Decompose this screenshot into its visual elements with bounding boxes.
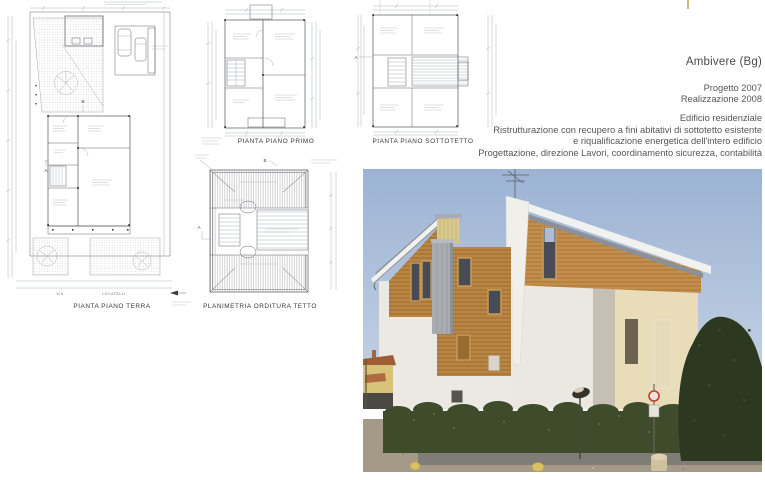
svg-text:A: A bbox=[197, 225, 201, 230]
description-line: e riqualificazione energetica dell'inter… bbox=[432, 136, 762, 148]
realization-year: Realizzazione 2008 bbox=[432, 94, 762, 105]
balcony bbox=[248, 118, 285, 127]
portfolio-page: B bbox=[0, 0, 765, 480]
plan-roof-framing-title: PLANIMETRIA ORDITURA TETTO bbox=[203, 303, 317, 310]
section-marker-a: A bbox=[354, 55, 373, 60]
garden-lower bbox=[33, 238, 160, 275]
building-plan bbox=[47, 115, 130, 226]
svg-text:LOCATELLI: LOCATELLI bbox=[102, 292, 126, 296]
plan-roof-framing-drawing: B A PLANIMETRIA ORDITURA TETTO bbox=[195, 152, 345, 320]
garden-upper bbox=[33, 18, 103, 112]
plan-ground-floor-title: PIANTA PIANO TERRA bbox=[73, 303, 150, 310]
plan-ground-floor-drawing: B bbox=[2, 0, 194, 315]
description-line: Progettazione, direzione Lavori, coordin… bbox=[432, 148, 762, 160]
neighbor-house bbox=[363, 350, 396, 409]
section-marker-a: A bbox=[197, 225, 210, 239]
svg-text:B: B bbox=[263, 158, 266, 163]
section-marker-b: B bbox=[263, 158, 277, 166]
note-text bbox=[202, 138, 222, 144]
chimney bbox=[250, 5, 272, 19]
project-description: Edificio residenziale Ristrutturazione c… bbox=[432, 113, 762, 159]
svg-text:VIA: VIA bbox=[56, 292, 63, 296]
porch bbox=[48, 226, 130, 234]
page-edge-mark bbox=[687, 0, 689, 9]
plan-first-floor-title: PIANTA PIANO PRIMO bbox=[238, 138, 315, 145]
street: VIA LOCATELLI bbox=[16, 281, 172, 296]
project-location: Ambivere (Bg) bbox=[432, 56, 762, 68]
description-line: Ristrutturazione con recupero a fini abi… bbox=[432, 125, 762, 137]
roof-plan bbox=[210, 170, 308, 292]
description-line: Edificio residenziale bbox=[432, 113, 762, 125]
floor-plan-walls bbox=[224, 19, 305, 128]
parking-cars bbox=[115, 26, 168, 75]
svg-text:B: B bbox=[81, 99, 84, 104]
metal-clad-column bbox=[431, 239, 454, 334]
project-year: Progetto 2007 bbox=[432, 83, 762, 94]
house-photo bbox=[363, 169, 762, 472]
north-arrow bbox=[170, 291, 190, 306]
plan-first-floor-drawing: PIANTA PIANO PRIMO bbox=[200, 0, 338, 150]
shadow-recess bbox=[591, 281, 615, 409]
project-info: Ambivere (Bg) Progetto 2007 Realizzazion… bbox=[432, 56, 762, 159]
